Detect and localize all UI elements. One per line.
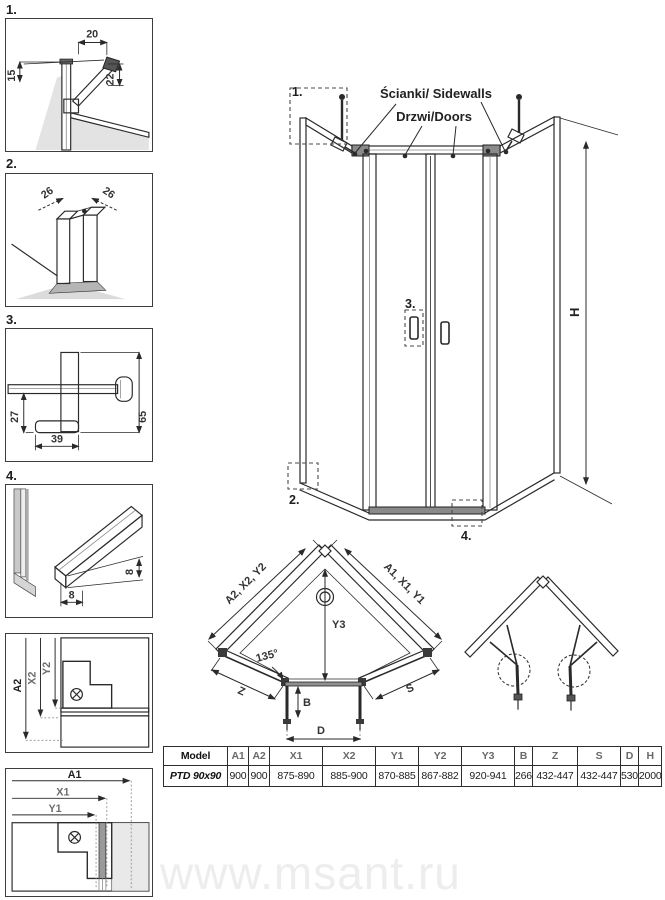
value-a2: 900	[249, 766, 270, 787]
threshold-bar	[369, 507, 485, 514]
left-corner-post	[218, 648, 227, 657]
detail-4-number: 4.	[6, 468, 17, 483]
right-edge-dims-label: A1, X1, Y1	[381, 561, 427, 607]
seal-profile-cut	[55, 567, 66, 588]
seal-profile-top	[55, 507, 142, 576]
detail-3-number: 3.	[6, 312, 17, 327]
handle-bar	[61, 352, 79, 431]
value-b: 266	[515, 766, 533, 787]
detail-1-number: 1.	[6, 2, 17, 17]
col-header-x1: X1	[270, 747, 323, 766]
seal-profile-front	[66, 515, 142, 587]
leader-dot	[364, 149, 369, 154]
left-door-handle	[410, 317, 418, 339]
dim-label-a2: A2	[12, 679, 24, 693]
detail-6-drawing: A1 X1 Y1	[6, 769, 151, 895]
towel-rod	[8, 385, 117, 394]
dim-label-x2: X2	[27, 672, 39, 685]
wall-profile-strip	[14, 489, 21, 573]
detail-2-drawing: 26 26	[6, 174, 151, 305]
callout-2: 2.	[289, 493, 299, 507]
dim-label-y1: Y1	[48, 803, 61, 815]
glass-edge-plan	[99, 823, 106, 879]
wall-mount-block	[103, 57, 120, 72]
left-sidewall-glass	[300, 118, 306, 483]
value-d: 530	[621, 766, 639, 787]
detail-2-number: 2.	[6, 156, 17, 171]
detail-panel-6: A1 X1 Y1	[5, 768, 153, 897]
col-header-s: S	[578, 747, 621, 766]
col-header-d: D	[621, 747, 639, 766]
col-header-x2: X2	[323, 747, 376, 766]
door-foot	[283, 719, 291, 724]
callout-3: 3.	[405, 297, 415, 311]
callout-1: 1.	[292, 85, 302, 99]
height-dim-label: H	[567, 308, 582, 317]
value-a1: 900	[228, 766, 249, 787]
value-x2: 885-900	[323, 766, 376, 787]
dim-label-x1: X1	[56, 786, 69, 798]
angle-label: 135°	[255, 647, 280, 664]
detail-3-drawing: 27 39 65	[6, 329, 151, 460]
sidewalls-label: Ścianki/ Sidewalls	[380, 86, 492, 101]
detail-panel-5: A2 X2 Y2	[5, 633, 153, 753]
dim-label-65: 65	[137, 411, 149, 423]
dim-label-26-left: 26	[39, 185, 56, 202]
d-label: D	[317, 725, 325, 737]
dim-label-15: 15	[6, 70, 18, 82]
door-swing-arc	[498, 654, 530, 686]
right-door-handle	[441, 322, 449, 344]
detail-5-drawing: A2 X2 Y2	[6, 634, 151, 751]
value-y2: 867-882	[419, 766, 462, 787]
screw-icon	[71, 689, 83, 701]
detail-panel-1: 20 22 15	[5, 18, 153, 152]
value-y1: 870-885	[376, 766, 419, 787]
door-foot	[356, 719, 364, 724]
building-wall-right	[543, 577, 618, 656]
col-header-h: H	[638, 747, 662, 766]
dim-label-a1: A1	[68, 769, 82, 781]
y3-label: Y3	[332, 619, 345, 631]
plan-view-drawing: A2, X2, Y2 A1, X1, Y1 Y3 135° Z S B D	[195, 540, 455, 755]
dim-label-y2: Y2	[41, 662, 53, 675]
dim-label-39: 39	[51, 433, 63, 445]
leader-dot	[486, 149, 491, 154]
door-swing-arc	[558, 655, 590, 687]
value-h: 2000	[638, 766, 662, 787]
col-header-a2: A2	[249, 747, 270, 766]
catalog-page: { "details": { "d1": {"num": "1.", "dim_…	[0, 0, 665, 900]
left-edge-dims-label: A2, X2, Y2	[223, 561, 269, 607]
table-header-row: Model A1 A2 X1 X2 Y1 Y2 Y3 B Z S D H	[164, 747, 662, 766]
col-header-z: Z	[533, 747, 578, 766]
building-wall-left	[465, 577, 543, 657]
screw-dot-icon	[82, 209, 87, 214]
door-bolt	[567, 695, 575, 701]
detail-panel-3: 27 39 65	[5, 328, 153, 462]
doors-label: Drzwi/Doors	[396, 109, 472, 124]
dim-label-22: 22	[105, 73, 117, 85]
col-header-model: Model	[164, 747, 228, 766]
dim-label-26-right: 26	[100, 185, 117, 202]
front-view-drawing: Ścianki/ Sidewalls Drzwi/Doors 1. 2. 3. …	[250, 80, 665, 560]
model-name-cell: PTD 90x90	[164, 766, 228, 787]
right-corner-post	[423, 648, 432, 657]
s-label: S	[404, 682, 416, 696]
door-bolt	[514, 694, 522, 700]
spec-table: Model A1 A2 X1 X2 Y1 Y2 Y3 B Z S D H PTD…	[163, 746, 662, 787]
col-header-b: B	[515, 747, 533, 766]
col-header-y3: Y3	[462, 747, 515, 766]
dim-label-8-side: 8	[124, 569, 136, 575]
callout-4: 4.	[461, 529, 471, 543]
handle-foot	[35, 421, 78, 433]
dim-label-20: 20	[86, 29, 98, 41]
table-data-row: PTD 90x90 900 900 875-890 885-900 870-88…	[164, 766, 662, 787]
col-header-y1: Y1	[376, 747, 419, 766]
value-z: 432-447	[533, 766, 578, 787]
z-label: Z	[236, 685, 247, 699]
value-y3: 920-941	[462, 766, 515, 787]
detail-1-drawing: 20 22 15	[6, 19, 151, 150]
dim-label-8-bottom: 8	[69, 589, 75, 601]
dim-label-27: 27	[9, 411, 21, 423]
value-x1: 875-890	[270, 766, 323, 787]
value-s: 432-447	[578, 766, 621, 787]
screw-icon	[69, 832, 81, 844]
detail-panel-4: 8 8	[5, 484, 153, 618]
detail-panel-2: 26 26	[5, 173, 153, 307]
corner-profile-right	[83, 215, 97, 281]
right-sidewall-glass	[554, 117, 560, 473]
b-label: B	[303, 697, 311, 709]
plan-view-open-doors	[450, 572, 665, 752]
door-threshold	[285, 682, 362, 686]
corner-profile-left	[57, 219, 70, 284]
col-header-a1: A1	[228, 747, 249, 766]
col-header-y2: Y2	[419, 747, 462, 766]
watermark: www.msant.ru	[160, 846, 461, 900]
detail-4-drawing: 8 8	[6, 485, 151, 616]
wall-profile-section	[63, 661, 112, 708]
